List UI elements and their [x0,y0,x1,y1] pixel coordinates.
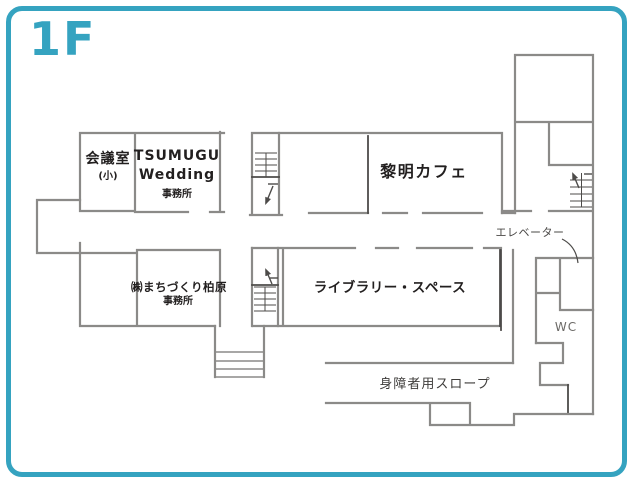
room-label-machizukuri-sub: 事務所 [163,294,193,307]
room-label-cafe: 黎明カフェ [380,162,468,181]
label-ramp: 身障者用スロープ [379,376,490,392]
entrance-steps [215,326,264,377]
floorplan-svg: 会議室 (小) TSUMUGU Wedding 事務所 黎明カフェ ㈱まちづくり… [0,0,630,480]
room-label-tsumugu-sub: 事務所 [162,187,192,200]
building-walls [37,55,593,425]
stairs-lower-center [252,248,278,326]
elevator-leader-line [562,239,578,263]
label-wc: WC [555,320,577,334]
label-elevator: エレベーター [496,226,565,239]
room-label-tsumugu-1: TSUMUGU [134,148,220,164]
room-label-meeting: 会議室 [86,150,131,167]
room-label-library: ライブラリー・スペース [314,279,466,296]
stairs-right [570,173,592,207]
room-label-tsumugu-2: Wedding [139,167,215,183]
room-labels: 会議室 (小) TSUMUGU Wedding 事務所 黎明カフェ ㈱まちづくり… [86,148,578,392]
room-label-meeting-sub: (小) [98,169,117,182]
stairs-upper-center [250,133,282,215]
room-label-machizukuri: ㈱まちづくり柏原 [131,280,227,294]
floorplan-page: 1F [0,0,630,480]
